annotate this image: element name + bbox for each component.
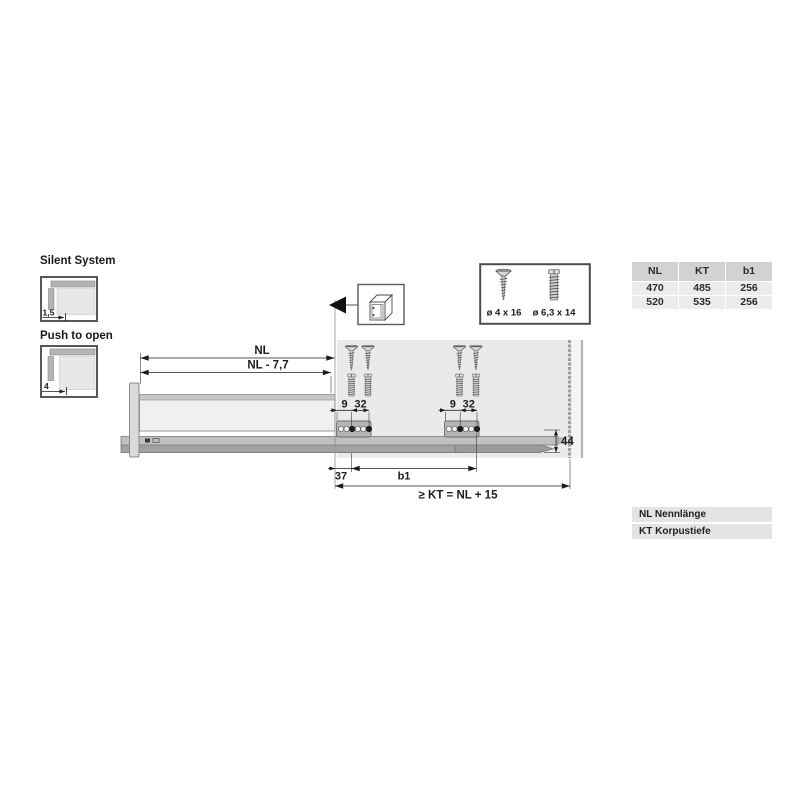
dim-nl-minus: NL - 7,7	[141, 360, 332, 394]
dim-44-text: 44	[561, 436, 574, 448]
drawer-front-panel	[130, 383, 140, 457]
mounting-bracket-front	[337, 421, 373, 437]
slide-rails	[121, 437, 564, 453]
dim-32-text: 32	[354, 399, 366, 411]
dim-nl-minus-text: NL - 7,7	[247, 360, 288, 372]
main-drawing: NL NL - 7,7 9 32 9 32 44	[0, 0, 800, 800]
dim-nl-text: NL	[254, 345, 269, 357]
dim-9-text: 9	[341, 399, 347, 411]
drawer-side-panel	[140, 395, 336, 432]
dim-b1-text: b1	[398, 471, 411, 483]
mounting-bracket-rear	[445, 421, 481, 437]
arrowhead-icon	[329, 297, 346, 314]
cabinet-icon-box	[358, 285, 404, 325]
dim-kt: ≥ KT = NL + 15	[335, 459, 570, 502]
dim-kt-text: ≥ KT = NL + 15	[419, 490, 499, 502]
dim-32-text: 32	[463, 399, 475, 411]
drawer-rail	[121, 437, 558, 446]
cabinet-rail	[121, 445, 460, 453]
dim-nl: NL	[141, 345, 335, 384]
view-direction-arrow	[329, 297, 358, 314]
dim-9-text: 9	[450, 399, 456, 411]
rail-rear-tongue	[455, 445, 553, 453]
dim-37-text: 37	[335, 471, 347, 483]
